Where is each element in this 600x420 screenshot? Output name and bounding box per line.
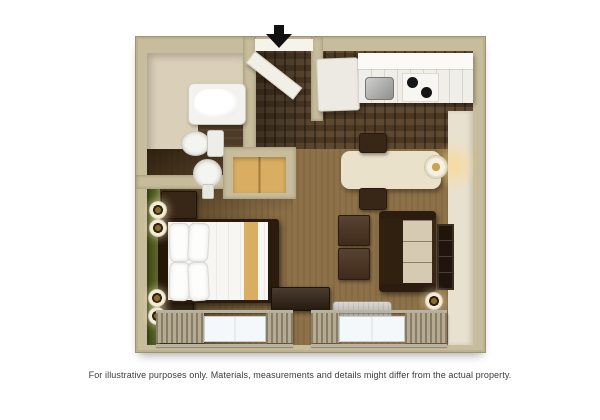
bed	[158, 219, 279, 303]
toilet-tank	[207, 130, 224, 157]
stove	[402, 73, 439, 102]
kitchen-counter	[358, 53, 473, 103]
dining-chair-bottom	[359, 188, 387, 210]
toilet	[181, 129, 222, 156]
sink-pedestal	[202, 184, 214, 199]
window-rail	[156, 344, 293, 347]
floorplan-image: For illustrative purposes only. Material…	[0, 0, 600, 420]
bed-accent-stripe	[244, 222, 258, 300]
refrigerator	[316, 57, 360, 111]
closet	[223, 147, 296, 199]
sofa	[379, 211, 436, 292]
curtain-right	[405, 313, 447, 343]
ottoman-1	[338, 215, 370, 246]
disclaimer-text: For illustrative purposes only. Material…	[0, 370, 600, 380]
wall-sconce-1	[149, 201, 167, 219]
curtain-left	[311, 313, 339, 343]
stove-burner-1	[407, 77, 418, 88]
entrance-arrow-head	[266, 34, 292, 48]
dining-chair-top	[359, 133, 387, 153]
kitchen-sink	[365, 77, 394, 100]
window-right	[311, 309, 447, 349]
entrance-arrow-stem	[274, 25, 284, 35]
curtain-right	[266, 313, 293, 343]
pillow	[187, 222, 210, 262]
closet-doors	[233, 157, 286, 193]
sofa-cushions	[403, 220, 432, 283]
sofa-arm-bottom	[379, 283, 436, 292]
ottoman-2	[338, 248, 370, 280]
bathtub-basin	[194, 89, 238, 117]
toilet-bowl	[181, 131, 210, 156]
window-left	[156, 309, 293, 349]
stove-burner-2	[421, 87, 432, 98]
bathtub	[188, 83, 246, 125]
media-dresser	[271, 287, 330, 311]
window-glass	[204, 316, 266, 342]
wall-tv-panel	[437, 224, 454, 290]
table-lamp	[424, 155, 448, 179]
bed-mattress	[168, 222, 268, 300]
sofa-back	[379, 219, 403, 284]
nightstand-top	[161, 191, 197, 219]
window-rail	[311, 344, 447, 347]
kitchen-cabinets	[358, 53, 473, 70]
curtain-left	[156, 313, 204, 343]
window-glass	[339, 316, 405, 342]
floor-plan	[135, 36, 486, 353]
pillow	[187, 261, 210, 301]
wall-sconce-living	[425, 292, 443, 310]
wall-sconce-3	[148, 289, 166, 307]
entrance-arrow-icon	[266, 25, 292, 48]
wall-sconce-2	[149, 219, 167, 237]
